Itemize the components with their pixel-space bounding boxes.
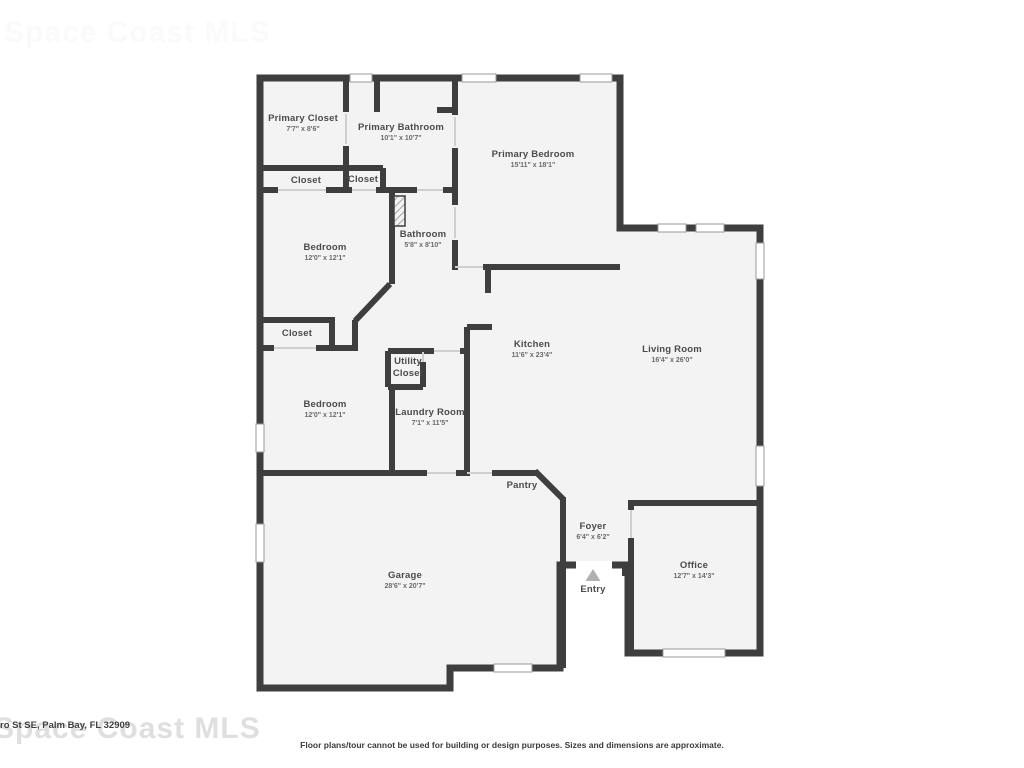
entry-arrow-icon [586,569,601,581]
floor-plan-canvas [0,0,1024,768]
property-address: ro St SE, Palm Bay, FL 32909 [0,720,130,731]
shower-hatch [394,196,405,226]
disclaimer-text: Floor plans/tour cannot be used for buil… [0,740,1024,750]
floor-plan-page: Space Coast MLS [0,0,1024,768]
